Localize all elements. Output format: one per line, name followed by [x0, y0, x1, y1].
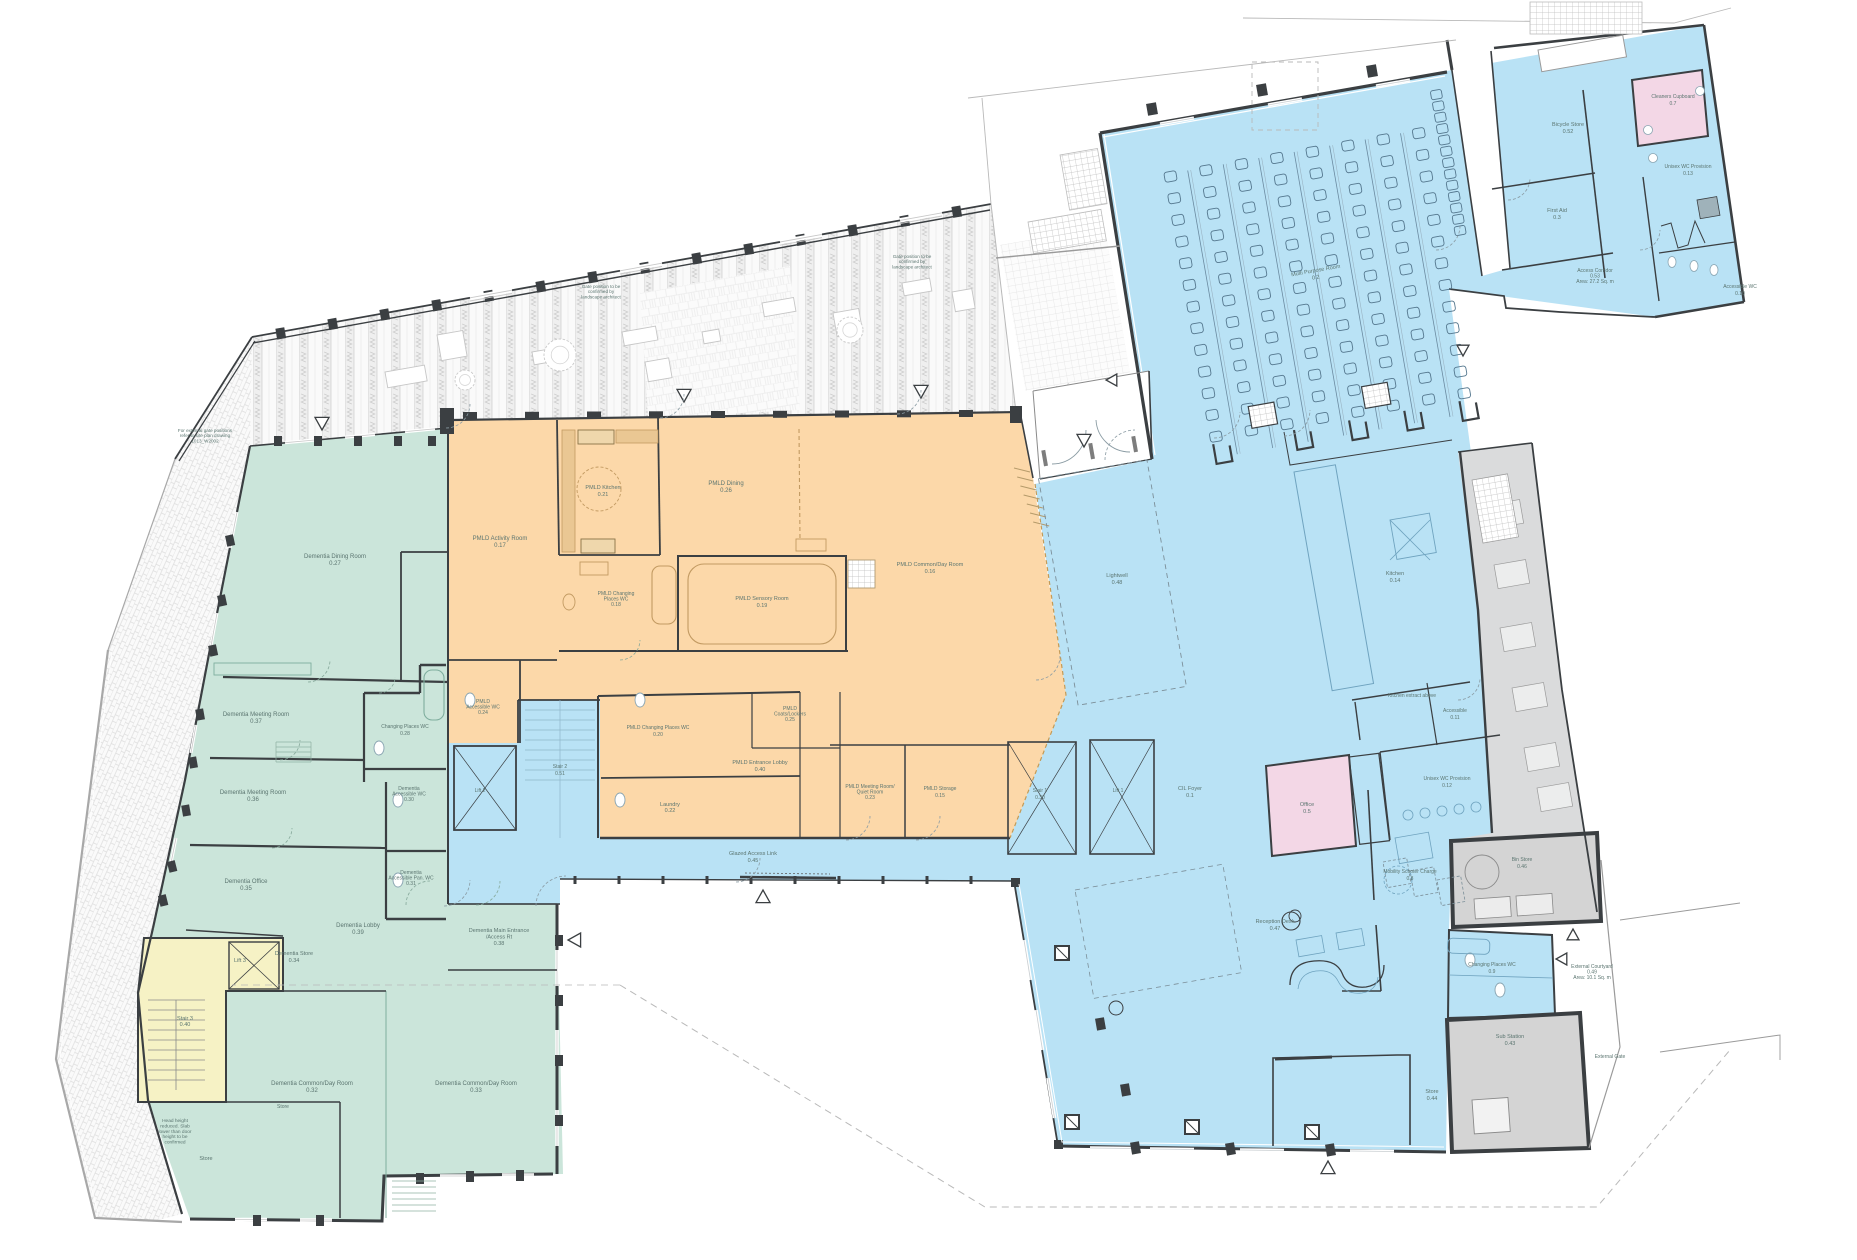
- svg-text:PMLD Sensory Room: PMLD Sensory Room: [735, 596, 789, 602]
- svg-text:Reception Desk: Reception Desk: [1256, 919, 1295, 925]
- svg-text:Changing Places WC: Changing Places WC: [1468, 962, 1516, 968]
- svg-text:0.37: 0.37: [250, 719, 262, 725]
- svg-text:/Access Rt: /Access Rt: [486, 935, 513, 941]
- svg-text:Dementia Lobby: Dementia Lobby: [336, 923, 380, 929]
- svg-text:Dementia Meeting Room: Dementia Meeting Room: [220, 790, 286, 796]
- svg-text:Dementia Store: Dementia Store: [275, 951, 313, 957]
- svg-text:Unisex WC Provision: Unisex WC Provision: [1424, 776, 1471, 782]
- svg-text:0.25: 0.25: [785, 717, 795, 723]
- svg-text:landscape architect: landscape architect: [892, 264, 932, 269]
- svg-text:Stair 2: Stair 2: [553, 764, 568, 770]
- svg-text:Mobility Scooter Charge: Mobility Scooter Charge: [1383, 869, 1437, 875]
- svg-text:Bicycle Store: Bicycle Store: [1552, 122, 1584, 128]
- svg-text:0.9: 0.9: [1489, 969, 1496, 975]
- svg-text:0.40: 0.40: [180, 1022, 191, 1028]
- svg-text:External Gate: External Gate: [1595, 1054, 1626, 1060]
- svg-text:landscape architect: landscape architect: [581, 294, 621, 299]
- svg-text:0.24: 0.24: [478, 710, 488, 716]
- svg-text:Lift 3: Lift 3: [234, 958, 246, 964]
- svg-text:CIL Foyer: CIL Foyer: [1178, 786, 1202, 792]
- svg-text:reduced. Slab: reduced. Slab: [160, 1123, 190, 1129]
- svg-text:0.19: 0.19: [757, 603, 768, 609]
- svg-text:Kitchen extract above: Kitchen extract above: [1388, 693, 1436, 699]
- svg-text:Dementia Main Entrance: Dementia Main Entrance: [469, 928, 530, 934]
- svg-text:0.12: 0.12: [1442, 783, 1452, 789]
- svg-text:PMLD Common/Day Room: PMLD Common/Day Room: [897, 562, 964, 568]
- svg-text:0.46: 0.46: [1517, 864, 1527, 870]
- svg-text:0.3: 0.3: [1553, 215, 1561, 221]
- svg-text:0.45: 0.45: [748, 858, 759, 864]
- svg-text:0.5: 0.5: [1303, 809, 1311, 815]
- svg-text:PMLD Entrance Lobby: PMLD Entrance Lobby: [732, 760, 788, 766]
- svg-text:0.13: 0.13: [1683, 171, 1693, 177]
- svg-text:0.18: 0.18: [611, 602, 621, 608]
- svg-text:PMLD Kitchen: PMLD Kitchen: [585, 485, 620, 491]
- svg-text:0.34: 0.34: [289, 958, 300, 964]
- svg-text:0.44: 0.44: [1427, 1096, 1438, 1102]
- svg-text:Area: 10.1 Sq. m: Area: 10.1 Sq. m: [1573, 975, 1611, 981]
- svg-text:0.7: 0.7: [1670, 101, 1677, 107]
- svg-text:0.43: 0.43: [1505, 1041, 1516, 1047]
- svg-text:PMLD Dining: PMLD Dining: [708, 481, 743, 487]
- svg-text:0.30: 0.30: [1035, 795, 1045, 801]
- svg-text:Area: 27.2 Sq. m: Area: 27.2 Sq. m: [1576, 279, 1614, 285]
- svg-text:0.22: 0.22: [665, 808, 676, 814]
- svg-text:Sub Station: Sub Station: [1496, 1034, 1524, 1040]
- svg-text:0.15: 0.15: [935, 793, 945, 799]
- svg-text:Accessible: Accessible: [1443, 708, 1467, 714]
- svg-text:0.8: 0.8: [1407, 876, 1414, 882]
- svg-text:0.17: 0.17: [494, 543, 506, 549]
- svg-text:0.26: 0.26: [720, 488, 732, 494]
- svg-text:0.28: 0.28: [400, 731, 410, 737]
- svg-text:Lift 2: Lift 2: [475, 788, 486, 794]
- svg-text:0.52: 0.52: [1563, 129, 1574, 135]
- svg-text:0.35: 0.35: [240, 886, 252, 892]
- svg-text:0.33: 0.33: [470, 1088, 482, 1094]
- svg-text:0.39: 0.39: [352, 930, 364, 936]
- svg-text:First Aid: First Aid: [1547, 208, 1567, 214]
- svg-text:0.27: 0.27: [329, 561, 341, 567]
- svg-text:0.30: 0.30: [404, 797, 414, 803]
- svg-text:Bin Store: Bin Store: [1512, 857, 1533, 863]
- svg-text:0.16: 0.16: [925, 569, 936, 575]
- svg-text:Accessible WC: Accessible WC: [1723, 284, 1757, 290]
- svg-text:0.51: 0.51: [555, 771, 565, 777]
- svg-text:1013_W2002: 1013_W2002: [191, 438, 219, 443]
- svg-text:height to be: height to be: [162, 1134, 187, 1140]
- svg-text:Office: Office: [1300, 802, 1314, 808]
- svg-text:Dementia Common/Day Room: Dementia Common/Day Room: [435, 1081, 517, 1087]
- svg-text:0.11: 0.11: [1450, 715, 1460, 721]
- svg-text:0.48: 0.48: [1112, 580, 1123, 586]
- svg-text:Changing Places WC: Changing Places WC: [381, 724, 429, 730]
- svg-text:Unisex WC Provision: Unisex WC Provision: [1665, 164, 1712, 170]
- svg-text:Cleaners Cupboard: Cleaners Cupboard: [1651, 94, 1695, 100]
- svg-text:Dementia Office: Dementia Office: [225, 879, 269, 885]
- svg-text:Kitchen: Kitchen: [1386, 571, 1404, 577]
- svg-text:0.21: 0.21: [598, 492, 609, 498]
- svg-text:0.36: 0.36: [247, 797, 259, 803]
- svg-text:lower than door: lower than door: [158, 1129, 191, 1135]
- svg-text:confirmed: confirmed: [164, 1140, 185, 1146]
- svg-text:0.20: 0.20: [653, 732, 663, 738]
- svg-text:0.14: 0.14: [1390, 578, 1401, 584]
- svg-text:0.10: 0.10: [1735, 291, 1745, 297]
- svg-text:Dementia Common/Day Room: Dementia Common/Day Room: [271, 1081, 353, 1087]
- svg-text:0.1: 0.1: [1186, 793, 1194, 799]
- svg-text:0.40: 0.40: [755, 767, 766, 773]
- svg-text:0.32: 0.32: [306, 1088, 318, 1094]
- svg-text:Glazed Access Link: Glazed Access Link: [729, 851, 777, 857]
- svg-text:0.38: 0.38: [494, 941, 505, 947]
- svg-text:0.23: 0.23: [865, 795, 875, 801]
- svg-text:0.31: 0.31: [406, 881, 416, 887]
- svg-text:Stair 1: Stair 1: [1033, 788, 1048, 794]
- svg-text:Store: Store: [277, 1104, 289, 1110]
- svg-text:PMLD Changing Places WC: PMLD Changing Places WC: [627, 725, 690, 731]
- svg-text:PMLD Activity Room: PMLD Activity Room: [473, 536, 528, 542]
- svg-text:0.47: 0.47: [1270, 926, 1281, 932]
- svg-text:Lift 1: Lift 1: [1113, 788, 1124, 794]
- svg-text:Store: Store: [199, 1156, 212, 1162]
- svg-text:Head height: Head height: [162, 1118, 189, 1124]
- svg-text:PMLD Storage: PMLD Storage: [924, 786, 957, 792]
- svg-text:Lightwell: Lightwell: [1106, 573, 1127, 579]
- svg-text:Store: Store: [1425, 1089, 1438, 1095]
- svg-text:Dementia Dining Room: Dementia Dining Room: [304, 554, 366, 560]
- svg-text:Dementia Meeting Room: Dementia Meeting Room: [223, 712, 289, 718]
